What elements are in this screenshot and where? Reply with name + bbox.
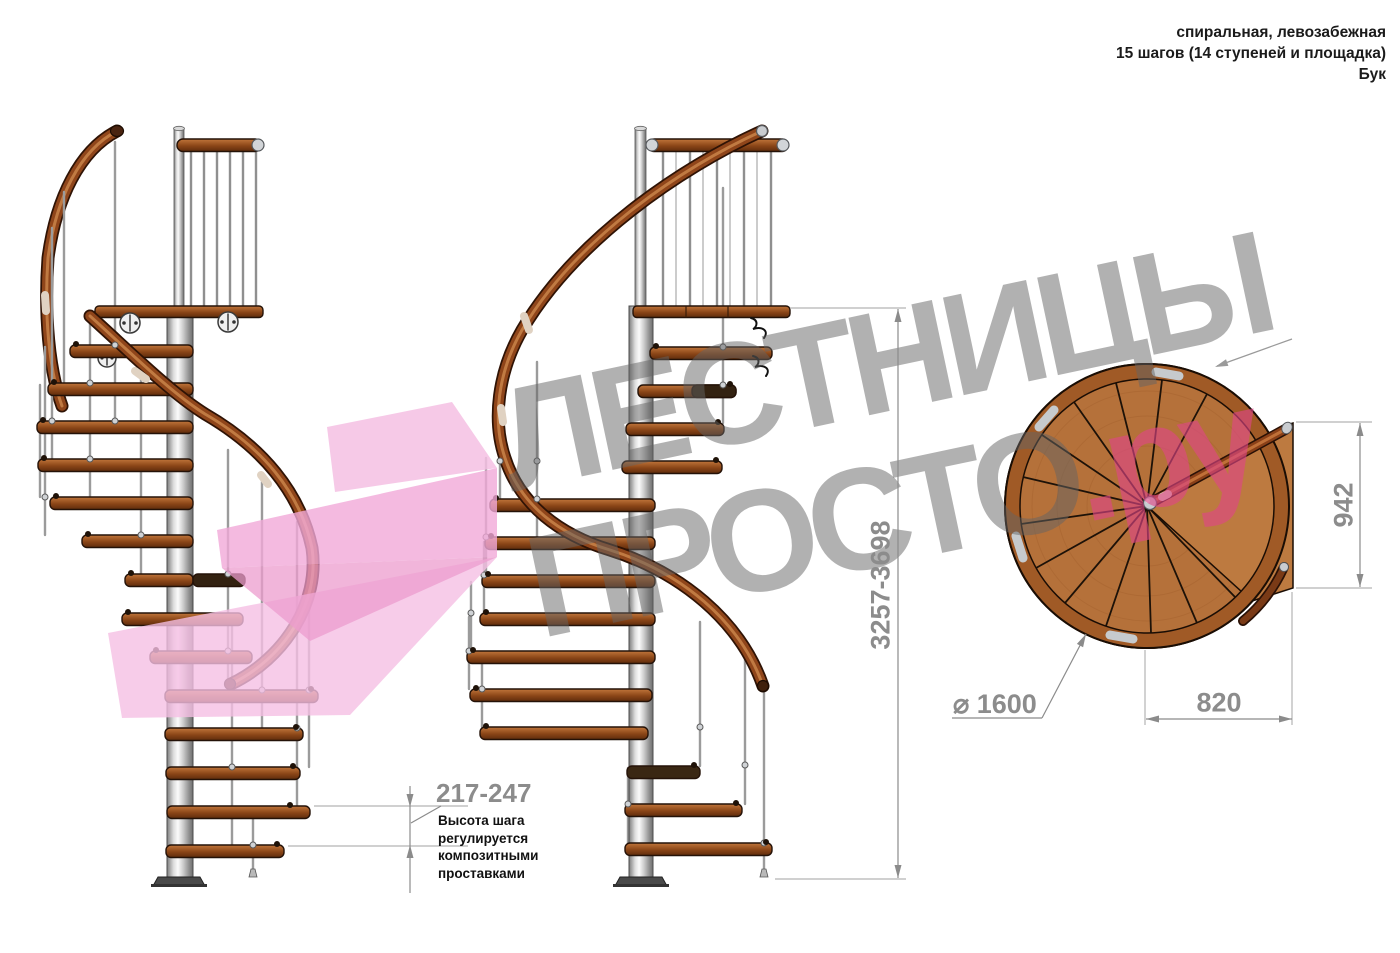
dim-diameter: ⌀ 1600 [953, 689, 1037, 720]
step-height-note: Высота шага регулируется композитными пр… [438, 812, 558, 882]
title-block: спиральная, левозабежная 15 шагов (14 ст… [1116, 22, 1386, 85]
dimension-layer [0, 0, 1400, 953]
title-steps: 15 шагов (14 ступеней и площадка) [1116, 43, 1386, 64]
drawing-canvas: ЛЕСТНИЦЫ ПРОСТО.ру [0, 0, 1400, 953]
title-material: Бук [1116, 64, 1386, 85]
dim-landing-width: 820 [1196, 688, 1241, 719]
title-type: спиральная, левозабежная [1116, 22, 1386, 43]
dim-landing-depth: 942 [1329, 482, 1360, 527]
dim-step-height: 217-247 [436, 778, 531, 809]
dim-total-height: 3257-3698 [866, 520, 897, 649]
